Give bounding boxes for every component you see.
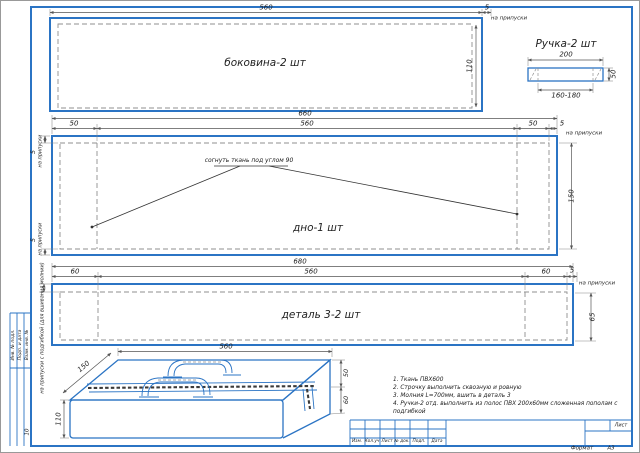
detail3-right-dim: 60 [542, 269, 551, 276]
iso-top-dim: 50 [343, 369, 350, 377]
detail3-allowance-dim: 5 [570, 268, 574, 275]
side-height-dim: 110 [467, 59, 474, 72]
drawing-sheet: боковина-2 шт 560 5 на припуски 110 Ручк… [0, 0, 640, 453]
iso-height-dim: 110 [56, 412, 63, 425]
side-allowance-dim: 5 [485, 5, 489, 12]
bottom-right-dim: 50 [529, 121, 538, 128]
handle-height-dim: 50 [611, 70, 618, 79]
detail3-center-dim: 560 [304, 269, 317, 276]
side-view-title: боковина-2 шт [224, 58, 306, 69]
title-col-izm: Изм. [352, 440, 362, 444]
detail3-total-dim: 680 [293, 259, 306, 266]
title-col-podp: Подп. [412, 440, 425, 444]
note-line: 1. Ткань ПВХ600 [393, 376, 640, 384]
stamp-podp-data: Подп. и дата [18, 330, 23, 361]
note-line: 2. Строчку выполнить сквозную и ровную [393, 384, 640, 392]
handle-inner-dim: 160-180 [551, 93, 580, 100]
side-width-dim: 560 [259, 5, 272, 12]
sheet-label: Лист [615, 424, 628, 429]
bottom-fold-note: согнуть ткань под углом 90 [205, 158, 294, 164]
bottom-left-dim: 50 [70, 121, 79, 128]
title-col-data: Дата [431, 440, 442, 444]
note-line: 4. Ручки-2 отд. выполнить из полос ПВХ 2… [393, 400, 640, 416]
title-col-ndok: № док. [394, 440, 409, 444]
bottom-left-allowance-bottom: 5 [30, 238, 37, 242]
bottom-height-dim: 150 [569, 189, 576, 202]
iso-bottom-dim: 60 [343, 396, 350, 404]
bottom-left-allowance-top: 5 [30, 150, 37, 154]
bottom-allowance-note: на припуски [566, 131, 602, 137]
iso-width-dim: 560 [219, 344, 232, 351]
note-line: 3. Молния L=700мм, вшить в деталь 3 [393, 392, 640, 400]
title-col-koluch: Кол.уч [365, 440, 380, 444]
bottom-total-dim: 660 [298, 111, 311, 118]
detail3-view-title: деталь 3-2 шт [282, 310, 361, 321]
detail3-allowance-note: на припуски [579, 281, 615, 287]
handle-view-title: Ручка-2 шт [535, 39, 596, 50]
side-allowance-note: на припуски [491, 16, 527, 22]
handle-width-dim: 200 [559, 52, 572, 59]
format-label: Формат [571, 446, 593, 452]
stamp-inv-podl: Инв. № подл. [11, 329, 16, 360]
bottom-left-allowance-top-note: на припуски [39, 135, 44, 168]
stamp-vzam-inv: Взам. инв. № [25, 330, 30, 361]
bottom-left-allowance-bottom-note: на припуски [39, 223, 44, 256]
bottom-center-dim: 560 [300, 121, 313, 128]
title-col-list: Лист [382, 440, 393, 444]
detail3-left-dim: 60 [71, 269, 80, 276]
notes-block: 1. Ткань ПВХ600 2. Строчку выполнить скв… [393, 376, 640, 417]
format-value: А3 [607, 446, 614, 452]
bottom-view-title: дно-1 шт [293, 223, 343, 234]
detail3-height-dim: 65 [590, 313, 597, 322]
stamp-number: 10 [25, 429, 31, 436]
bottom-allowance-dim: 5 [560, 121, 564, 128]
detail3-side-note: на припуски с подгибкой (для вшивания мо… [41, 262, 46, 393]
